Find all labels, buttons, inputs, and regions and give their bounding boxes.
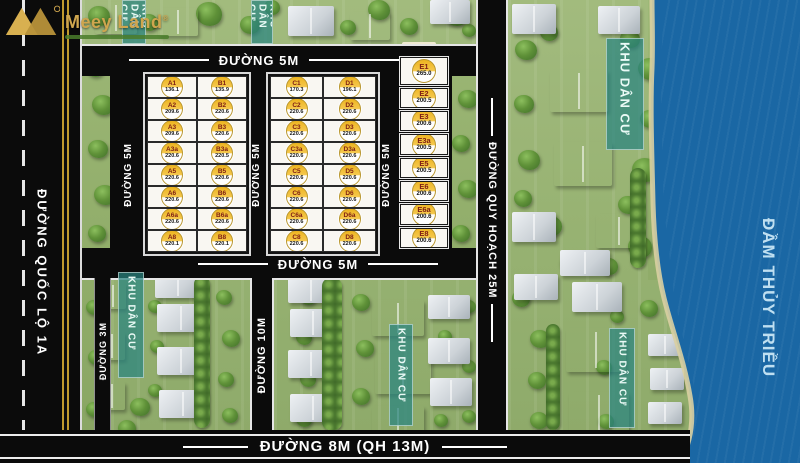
plot-cell-E1: E1265.0 [400,57,448,85]
tree-icon [458,180,478,198]
plot-code: D1 [345,80,353,87]
plot-area: 220.6 [343,175,357,181]
plot-code: B3 [218,124,226,131]
plot-area: 200.5 [416,145,431,152]
plot-area: 220.6 [290,153,304,159]
plot-area: 220.6 [343,219,357,225]
tree-icon [515,40,537,60]
tree-icon [514,95,534,113]
road-label-text: ĐƯỜNG 3M [98,322,108,380]
plot-cell-C3: C3220.6 [270,120,323,142]
plot-cell-B6a: B6a220.6 [197,208,247,230]
plot-code: C3a [291,146,303,153]
house-icon [550,70,608,112]
plot-cell-A5: A5220.6 [147,164,197,186]
plot-badge: A3209.6 [161,120,183,142]
road-label-text: ĐƯỜNG QUỐC LỘ 1A [35,189,50,356]
plot-code: D3a [344,146,356,153]
road-label-bottom-8m: ĐƯỜNG 8M (QH 13M) [0,430,690,463]
plot-area: 170.3 [290,87,304,93]
plot-badge: A6a220.6 [161,208,183,230]
plot-cell-E2: E2200.5 [400,88,448,108]
plot-badge: B8220.1 [211,230,233,252]
residential-band: KHU DÂN CƯ [606,38,644,150]
plot-code: D5 [345,168,353,175]
tree-icon [518,150,540,170]
tree-icon [352,294,370,311]
plot-badge: D8220.6 [339,230,361,252]
plot-area: 220.6 [165,175,179,181]
plot-cell-C3a: C3a220.6 [270,142,323,164]
plot-area: 220.6 [215,109,229,115]
plot-area: 209.6 [165,131,179,137]
road-label-text: ĐƯỜNG 8M (QH 13M) [260,438,431,455]
plot-area: 220.1 [215,241,229,247]
house-icon [598,6,640,34]
house-icon [514,274,558,300]
plot-code: D2 [345,102,353,109]
plot-area: 220.6 [343,153,357,159]
plot-area: 220.6 [290,131,304,137]
plot-cell-D1: D1196.1 [323,76,376,98]
plot-area: 220.6 [165,153,179,159]
plot-badge: B2220.6 [211,98,233,120]
plot-badge: C5220.6 [286,164,308,186]
plot-area: 220.6 [343,197,357,203]
plot-code: A3a [166,146,178,153]
plot-cell-B3: B3220.6 [197,120,247,142]
plot-cell-D6a: D6a220.6 [323,208,376,230]
plot-code: D6 [345,190,353,197]
tree-icon [528,372,546,389]
residential-band: KHU DÂN CƯ [251,0,273,44]
tree-icon [216,290,232,305]
house-icon [428,295,470,319]
plot-code: E2 [419,90,428,98]
plot-badge: E2200.5 [412,88,436,108]
tree-icon [352,388,370,405]
brand-name: Meey Land® [65,9,169,32]
plot-code: E8 [419,230,428,238]
brand-logo-icon [4,3,60,39]
tree-icon [434,414,448,427]
plot-cell-A6: A6220.6 [147,186,197,208]
tree-icon [458,90,478,108]
residential-band: KHU DÂN CƯ [609,328,635,428]
lane-dash-line [22,0,25,463]
plot-cell-E6a: E6a200.6 [400,204,448,224]
plot-cell-E3: E3200.6 [400,111,448,131]
tree-icon [88,225,106,242]
plot-cell-C8: C8220.6 [270,230,323,252]
plot-code: A5 [168,168,176,175]
plot-code: C6a [291,212,303,219]
road-label-text: ĐƯỜNG 10M [256,317,268,393]
plot-cell-D5: D5220.6 [323,164,376,186]
plot-badge: A3a220.6 [161,142,183,164]
plot-area: 220.6 [215,131,229,137]
plot-panel-e: E1265.0E2200.5E3200.6E3a200.5E5200.5E620… [400,57,448,248]
hedge-row [322,278,342,430]
plot-area: 136.1 [165,87,179,93]
plot-code: D6a [344,212,356,219]
road-label-text: ĐƯỜNG 5M [123,143,134,207]
gold-center-line [62,0,64,463]
plot-badge: D6a220.6 [339,208,361,230]
plot-badge: C8220.6 [286,230,308,252]
plot-code: B6 [218,190,226,197]
plot-area: 265.0 [416,71,431,78]
plot-area: 220.6 [290,219,304,225]
house-icon [350,12,390,40]
plot-cell-B6: B6220.6 [197,186,247,208]
plot-cell-C6: C6220.6 [270,186,323,208]
tree-icon [196,2,222,26]
plot-badge: D6220.6 [339,186,361,208]
road-label-quoc-lo-1a: ĐƯỜNG QUỐC LỘ 1A [28,138,56,408]
plot-code: C2 [292,102,300,109]
plot-badge: E6200.6 [412,181,436,201]
plot-code: C3 [292,124,300,131]
plot-code: A3 [168,124,176,131]
gold-center-line [67,0,69,463]
plot-cell-C2: C2220.6 [270,98,323,120]
road-label-10m: ĐƯỜNG 10M [250,292,274,418]
lagoon-label: ĐẦM THỦY TRIỀU [736,158,778,438]
plot-code: B8 [218,234,226,241]
plot-badge: B6a220.6 [211,208,233,230]
tree-icon [452,225,470,242]
tree-icon [452,135,470,152]
plot-code: C1 [292,80,300,87]
plot-cell-D6: D6220.6 [323,186,376,208]
plot-code: B2 [218,102,226,109]
plot-cell-E8: E8200.6 [400,228,448,248]
house-icon [430,378,472,406]
tree-icon [222,408,238,423]
house-icon [572,282,622,312]
plot-area: 220.6 [290,175,304,181]
plot-area: 220.6 [290,241,304,247]
plot-badge: A6220.6 [161,186,183,208]
plot-cell-B5: B5220.6 [197,164,247,186]
plot-area: 196.1 [343,87,357,93]
plot-badge: A8220.1 [161,230,183,252]
plot-code: A2 [168,102,176,109]
road-label-planning-25m: ĐƯỜNG QUY HOẠCH 25M [476,86,508,354]
logo-tagline-bar [65,35,169,39]
plot-badge: A2209.6 [161,98,183,120]
plot-code: A6a [166,212,178,219]
plot-badge: D2220.6 [339,98,361,120]
plot-code: B6a [216,212,228,219]
plot-cell-E6: E6200.6 [400,181,448,201]
plot-badge: A5220.6 [161,164,183,186]
plot-cell-B8: B8220.1 [197,230,247,252]
plot-code: B5 [218,168,226,175]
plot-area: 200.6 [416,214,431,221]
road-label-inner-left-5m: ĐƯỜNG 5M [110,108,146,242]
plot-area: 200.5 [416,98,431,105]
plot-code: D3 [345,124,353,131]
registered-mark: ® [163,14,169,23]
label-dash [198,263,268,265]
plot-badge: E8200.6 [412,228,436,248]
label-dash [442,446,507,448]
label-dash [368,263,438,265]
plot-cell-C6a: C6a220.6 [270,208,323,230]
plot-code: E6 [419,183,428,191]
tree-icon [462,410,476,423]
tree-icon [222,330,240,347]
road-label-text: ĐƯỜNG 5M [251,143,262,207]
house-icon [430,0,470,24]
label-dash [491,98,493,136]
plot-badge: E5200.5 [412,158,436,178]
plot-badge: B3a220.5 [211,142,233,164]
plot-code: A1 [168,80,176,87]
plot-badge: B1135.9 [211,76,233,98]
plot-code: C5 [292,168,300,175]
label-dash [491,304,493,342]
tree-icon [514,190,532,207]
hedge-row [546,324,560,430]
label-dash [129,59,209,61]
brand-logo: Meey Land® [4,3,169,39]
plot-code: E3a [417,137,430,145]
plot-code: A8 [168,234,176,241]
plot-badge: C3220.6 [286,120,308,142]
plot-area: 220.6 [215,175,229,181]
tree-icon [462,24,476,37]
plot-badge: C1170.3 [286,76,308,98]
plot-area: 220.6 [343,131,357,137]
plot-badge: C6220.6 [286,186,308,208]
plot-badge: E3200.6 [412,111,436,131]
plot-badge: C6a220.6 [286,208,308,230]
plot-area: 220.6 [290,197,304,203]
plot-area: 220.5 [215,153,229,159]
plot-area: 220.6 [343,241,357,247]
plot-code: E1 [419,63,428,71]
road-label-text: ĐƯỜNG 5M [278,257,358,272]
plot-cell-E5: E5200.5 [400,158,448,178]
plot-area: 220.6 [343,109,357,115]
tree-icon [88,140,108,158]
road-label-text: ĐƯỜNG 5M [381,143,392,207]
plot-area: 135.9 [215,87,229,93]
tree-icon [130,398,150,416]
plot-cell-D8: D8220.6 [323,230,376,252]
residential-band: KHU DÂN CƯ [389,324,413,426]
plot-code: D8 [345,234,353,241]
plot-cell-B1: B1135.9 [197,76,247,98]
plot-area: 220.6 [290,109,304,115]
plot-area: 220.6 [215,219,229,225]
plot-code: E3 [419,113,428,121]
house-icon [560,250,610,276]
plot-panel-ab: A1136.1B1135.9A2209.6B2220.6A3209.6B3220… [145,74,249,254]
tree-icon [356,340,374,357]
plot-code: B1 [218,80,226,87]
plot-area: 200.6 [416,191,431,198]
hedge-row [194,276,210,428]
house-icon [428,338,470,364]
plot-badge: D3220.6 [339,120,361,142]
label-dash [183,446,248,448]
plot-area: 220.6 [215,197,229,203]
plot-badge: E6a200.6 [412,204,436,224]
plot-cell-C1: C1170.3 [270,76,323,98]
plot-area: 220.6 [165,219,179,225]
plot-badge: C3a220.6 [286,142,308,164]
plot-badge: B6220.6 [211,186,233,208]
residential-band: KHU DÂN CƯ [118,272,144,378]
plot-area: 209.6 [165,109,179,115]
plot-cell-A3a: A3a220.6 [147,142,197,164]
plot-cell-A8: A8220.1 [147,230,197,252]
plot-panel-cd: C1170.3D1196.1C2220.6D2220.6C3220.6D3220… [268,74,378,254]
plot-code: A6 [168,190,176,197]
plot-badge: A1136.1 [161,76,183,98]
plot-cell-B2: B2220.6 [197,98,247,120]
plot-cell-D3: D3220.6 [323,120,376,142]
plot-area: 220.6 [165,197,179,203]
plot-code: E6a [417,206,430,214]
plot-badge: E3a200.5 [412,134,436,154]
plot-area: 200.6 [416,121,431,128]
plot-cell-A3: A3209.6 [147,120,197,142]
plot-cell-A1: A1136.1 [147,76,197,98]
plot-badge: E1265.0 [412,59,436,83]
plot-code: B3a [216,146,228,153]
plot-badge: C2220.6 [286,98,308,120]
plot-cell-E3a: E3a200.5 [400,134,448,154]
plot-code: C6 [292,190,300,197]
tree-icon [400,18,418,35]
site-plan-map: ĐẦM THỦY TRIỀU ĐƯỜNG QUỐC LỘ 1A ĐƯỜNG 5M… [0,0,800,463]
plot-area: 220.1 [165,241,179,247]
plot-badge: D5220.6 [339,164,361,186]
house-icon [512,212,556,242]
plot-area: 200.5 [416,168,431,175]
plot-cell-C5: C5220.6 [270,164,323,186]
plot-cell-D3a: D3a220.6 [323,142,376,164]
plot-cell-B3a: B3a220.5 [197,142,247,164]
plot-badge: D1196.1 [339,76,361,98]
plot-cell-A2: A2209.6 [147,98,197,120]
plot-code: E5 [419,160,428,168]
road-label-text: ĐƯỜNG 5M [219,53,299,68]
plot-badge: B5220.6 [211,164,233,186]
plot-badge: B3220.6 [211,120,233,142]
plot-area: 200.6 [416,238,431,245]
road-label-3m: ĐƯỜNG 3M [94,296,111,406]
plot-cell-D2: D2220.6 [323,98,376,120]
plot-cell-A6a: A6a220.6 [147,208,197,230]
house-icon [512,4,556,34]
house-icon [288,6,334,36]
house-icon [554,142,612,186]
tree-icon [218,372,234,387]
plot-code: C8 [292,234,300,241]
plot-badge: D3a220.6 [339,142,361,164]
road-label-text: ĐƯỜNG QUY HOẠCH 25M [486,142,498,299]
